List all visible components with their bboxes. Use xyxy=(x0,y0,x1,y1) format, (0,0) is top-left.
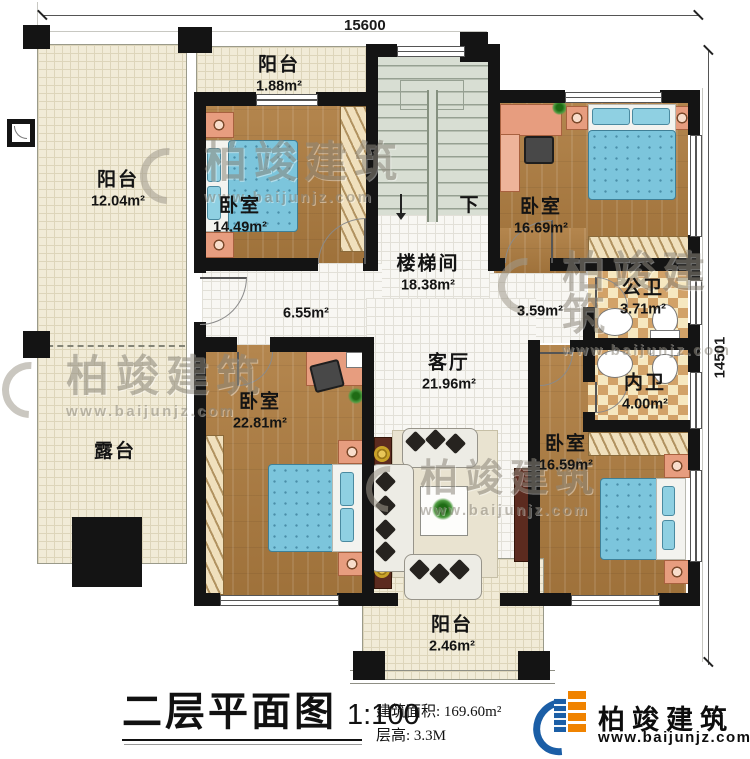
title-underline-thin xyxy=(124,744,362,745)
bed xyxy=(268,464,338,552)
nightstand xyxy=(664,560,690,584)
window xyxy=(690,470,702,562)
column xyxy=(178,27,212,53)
wall xyxy=(550,258,700,271)
room-label-bedroom-top-right: 卧室 16.69m² xyxy=(514,196,568,239)
wall xyxy=(194,593,220,606)
wall xyxy=(688,427,700,470)
room-label-terrace: 露台 xyxy=(94,440,136,464)
area-label-hallway: 6.55m² xyxy=(283,305,329,324)
room-label-bedroom-bottom-right: 卧室 16.59m² xyxy=(539,433,593,476)
room-label-stairwell: 楼梯间 18.38m² xyxy=(396,253,459,296)
wall xyxy=(194,337,237,352)
window xyxy=(565,92,662,103)
eave-line-right xyxy=(702,88,703,662)
pillow xyxy=(632,108,670,125)
room-label-balcony-bottom: 阳台 2.46m² xyxy=(429,614,475,657)
floor-height-row: 层高: 3.3M xyxy=(376,724,501,748)
stair-down-label: 下 xyxy=(459,194,480,218)
title-underline xyxy=(122,739,362,741)
building-info: 建筑面积: 169.60m² 层高: 3.3M xyxy=(376,700,501,748)
wall xyxy=(658,593,700,606)
desk-return xyxy=(500,134,520,192)
wall xyxy=(362,337,374,593)
computer-monitor xyxy=(524,136,554,164)
room-label-inner-bath: 内卫 4.00m² xyxy=(622,372,668,415)
pillow xyxy=(662,486,675,516)
nightstand xyxy=(204,112,234,138)
floor-plan-page: 柏竣建筑 www.baijunjz.com 柏竣建筑 www.baijunjz.… xyxy=(0,0,750,759)
room-label-public-bath: 公卫 3.71m² xyxy=(620,277,666,320)
column-white xyxy=(7,119,35,147)
logo-building-blue-icon xyxy=(554,698,566,732)
eave-line-top xyxy=(37,31,487,32)
dimension-line-right xyxy=(708,50,709,665)
pillow xyxy=(662,520,675,550)
wall xyxy=(366,44,378,263)
wall xyxy=(194,322,206,600)
wall xyxy=(528,340,540,352)
nightstand xyxy=(664,454,690,478)
column xyxy=(23,331,50,358)
wall xyxy=(488,258,505,271)
column xyxy=(518,651,550,680)
stair-direction-arrow xyxy=(400,194,402,214)
wardrobe xyxy=(588,432,690,456)
window xyxy=(690,372,702,429)
plan-title: 二层平面图 1:100 xyxy=(122,692,420,732)
column xyxy=(23,25,50,49)
company-website: www.baijunjz.com xyxy=(598,729,750,746)
room-label-living-room: 客厅 21.96m² xyxy=(422,352,476,395)
column xyxy=(353,651,385,680)
wall xyxy=(688,90,700,135)
wall xyxy=(366,44,397,57)
dimension-line-top xyxy=(42,15,700,16)
room-label-bedroom-bottom-left: 卧室 22.81m² xyxy=(233,391,287,434)
wall xyxy=(583,338,700,350)
column-detail xyxy=(14,126,27,139)
room-label-bedroom-top-left: 卧室 14.49m² xyxy=(213,195,267,238)
window xyxy=(690,280,702,325)
logo-building-orange-icon xyxy=(568,688,586,732)
balcony-left-floor xyxy=(37,44,187,564)
decor-medallion xyxy=(374,446,390,462)
wall xyxy=(270,337,374,352)
wall xyxy=(583,420,700,432)
wall xyxy=(194,92,256,106)
wall xyxy=(500,593,571,606)
window xyxy=(571,595,660,606)
bed xyxy=(600,478,662,560)
terrace-divider-line xyxy=(37,345,185,347)
building-area-row: 建筑面积: 169.60m² xyxy=(376,700,501,724)
dimension-top-value: 15600 xyxy=(344,17,386,34)
company-logo-icon xyxy=(534,686,590,750)
pillow xyxy=(592,108,630,125)
stair-arrow-head-icon xyxy=(396,213,406,220)
window xyxy=(220,595,339,606)
window xyxy=(690,135,702,237)
room-label-balcony-left: 阳台 12.04m² xyxy=(91,169,145,212)
wall xyxy=(337,593,398,606)
column xyxy=(72,517,142,587)
nightstand xyxy=(566,106,588,130)
window xyxy=(397,46,465,57)
plant xyxy=(432,498,454,520)
room-label-balcony-top: 阳台 1.88m² xyxy=(256,54,302,97)
wall xyxy=(488,90,565,103)
wall xyxy=(570,340,595,352)
wall xyxy=(194,258,318,271)
pillow xyxy=(340,508,354,542)
pillow xyxy=(207,148,221,182)
pillow xyxy=(340,472,354,506)
wall xyxy=(488,44,500,263)
bed xyxy=(588,130,676,200)
wall xyxy=(194,92,206,273)
area-label-corridor: 3.59m² xyxy=(517,303,563,322)
dimension-right-value: 14501 xyxy=(712,320,729,396)
stair-rail xyxy=(427,90,438,222)
